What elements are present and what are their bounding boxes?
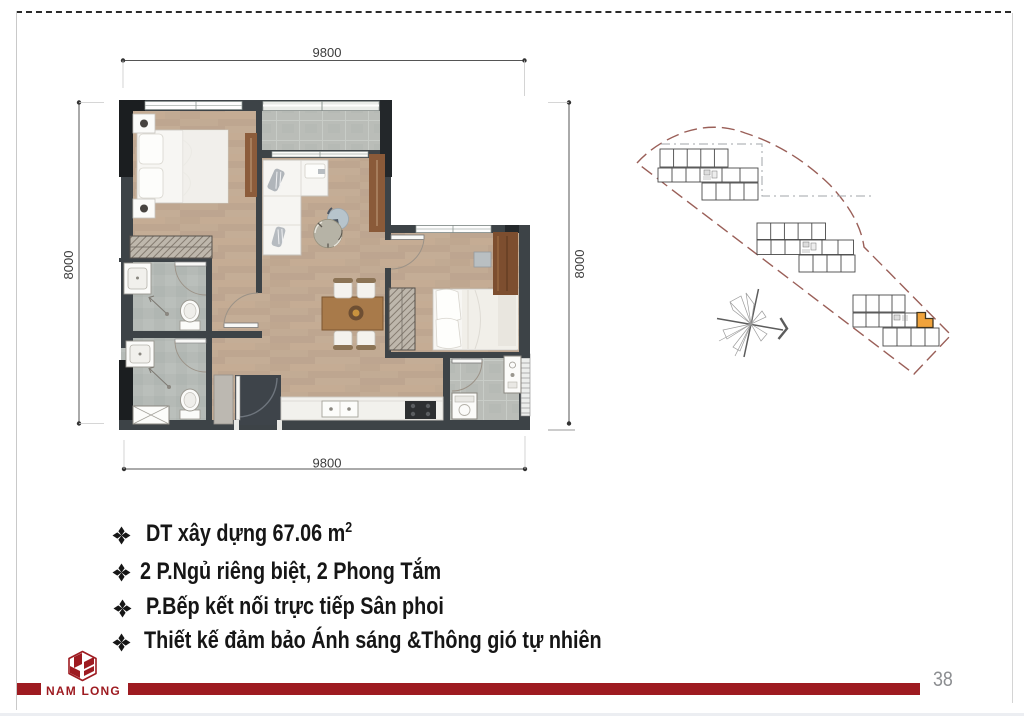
svg-text:9800: 9800 <box>313 456 342 471</box>
svg-text:8000: 8000 <box>61 251 76 280</box>
svg-text:9800: 9800 <box>313 45 342 60</box>
svg-text:8000: 8000 <box>572 250 587 279</box>
